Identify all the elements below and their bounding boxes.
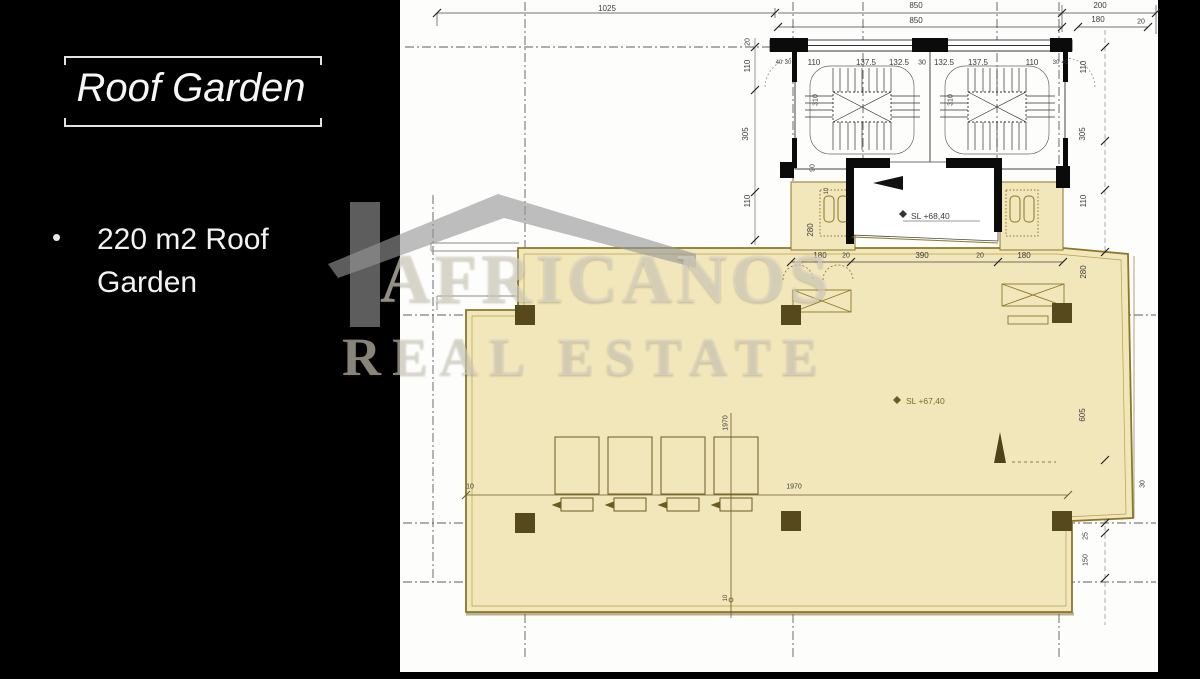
level-label-roof-garden: SL +67,40 [906, 397, 945, 406]
terrace-strip-right [1000, 182, 1063, 250]
bullet-marker: • [52, 222, 61, 253]
page-title: Roof Garden [64, 66, 318, 111]
terrace-strip-left [791, 182, 855, 250]
title-bracket-top [64, 56, 322, 65]
bullet-text: 220 m2 Roof Garden [97, 219, 292, 305]
slide: { "slide": { "title": "Roof Garden", "bu… [0, 0, 1200, 679]
roof-garden-area [466, 248, 1134, 614]
title-bracket-bottom [64, 118, 322, 127]
level-label-machine-room: SL +68,40 [911, 212, 950, 221]
left-panel: Roof Garden • 220 m2 Roof Garden [0, 0, 400, 679]
machine-room [846, 158, 1002, 244]
